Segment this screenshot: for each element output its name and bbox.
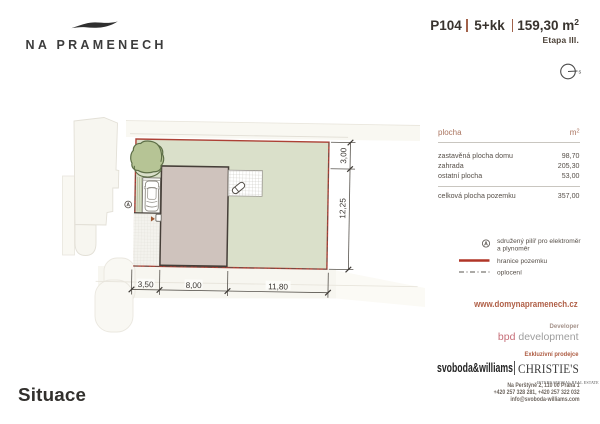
- svg-text:3,50: 3,50: [138, 280, 155, 289]
- svg-text:12,25: 12,25: [338, 198, 347, 219]
- svg-text:8,00: 8,00: [186, 281, 203, 290]
- svg-text:3,00: 3,00: [339, 147, 348, 164]
- svg-text:sdružený pilíř pro elektroměr: sdružený pilíř pro elektroměr: [497, 238, 581, 245]
- svg-text:11,80: 11,80: [268, 282, 288, 291]
- svg-text:hranice pozemku: hranice pozemku: [497, 258, 548, 265]
- svg-text:oplocení: oplocení: [497, 270, 522, 277]
- svg-text:a plynoměr: a plynoměr: [497, 246, 530, 253]
